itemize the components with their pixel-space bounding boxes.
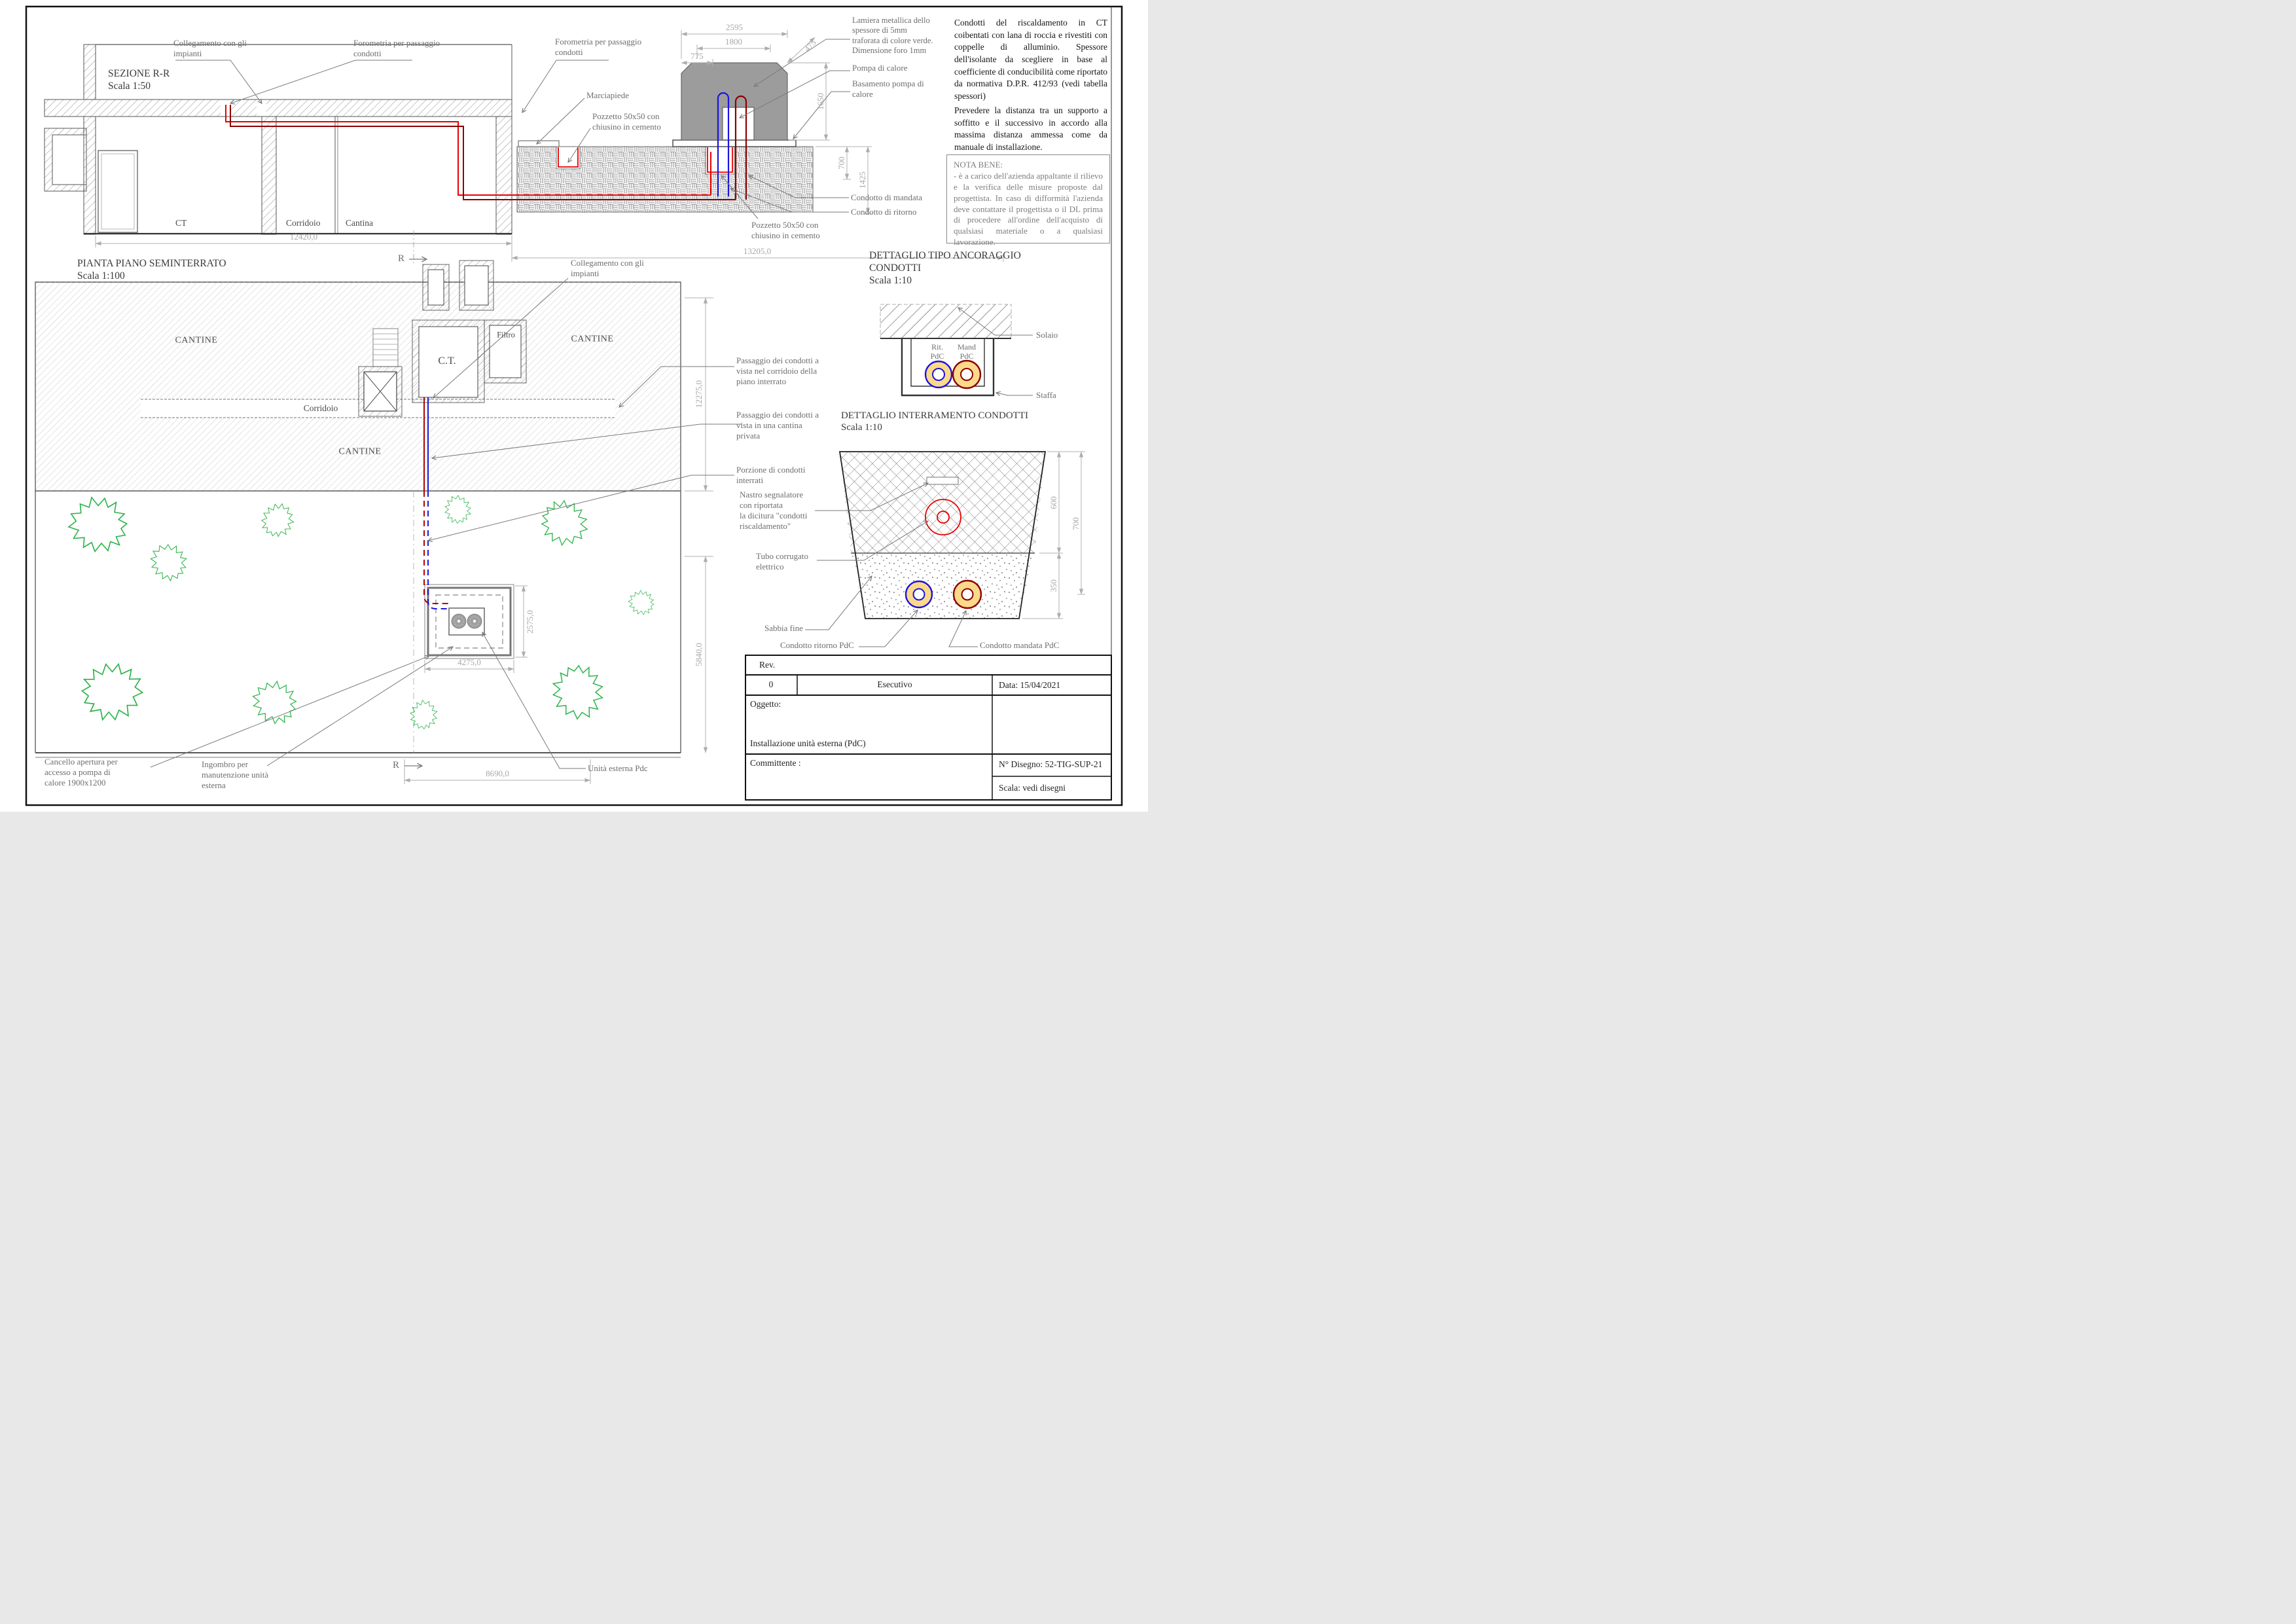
callout-porzione-interrati: Porzione di condotti interrati [736,465,805,486]
section-cut-marker-top: R [398,253,404,264]
garden [35,491,681,757]
callout-nastro: Nastro segnalatore con riportata la dici… [740,490,808,531]
titleblock-committente-label: Committente : [750,758,801,768]
callout-solaio: Solaio [1036,330,1058,340]
solaio-slab [880,304,1011,338]
ct-equipment [98,151,137,232]
callout-forometria-1: Forometria per passaggio condotti [353,38,440,59]
dim-12275: 12275,0 [694,380,704,408]
nastro-segnalatore [927,477,958,484]
room-corridoio-plan: Corridoio [304,403,338,414]
title-block-grid [745,655,1111,800]
plan-view [35,261,742,784]
callout-staffa: Staffa [1036,390,1056,401]
pipe-mand-pdc [953,361,980,388]
spec-note-2: Prevedere la distanza tra un supporto a … [954,105,1107,154]
room-cantina: Cantina [346,218,373,228]
dim-8690: 8690,0 [486,768,509,779]
callout-condotto-mandata: Condotto mandata PdC [980,640,1059,651]
nota-bene-title: NOTA BENE: [954,160,1103,171]
dim-775: 775 [691,51,704,62]
titleblock-drawing-no: N° Disegno: 52-TIG-SUP-21 [999,759,1102,770]
pipe-ritorno-trench [906,581,932,607]
dim-1800: 1800 [725,37,742,47]
callout-marciapiede: Marciapiede [586,90,629,101]
dim-2575: 2575,0 [525,610,535,634]
label-mand-pdc: Mand PdC [958,343,976,361]
callout-ingombro: Ingombro per manutenzione unità esterna [202,759,268,791]
callout-sabbia: Sabbia fine [764,623,803,634]
callout-lamiera: Lamiera metallica dello spessore di 5mm … [852,16,950,56]
external-unit [425,585,514,659]
titleblock-status: Esecutivo [877,679,912,690]
trench-soil [840,452,1045,553]
detail-trench-title: DETTAGLIO INTERRAMENTO CONDOTTI Scala 1:… [841,410,1028,434]
titleblock-scale: Scala: vedi disegni [999,783,1066,793]
dim-600: 600 [1049,496,1059,509]
section-title: SEZIONE R-R Scala 1:50 [108,68,170,93]
titleblock-date: Data: 15/04/2021 [999,680,1060,691]
detail-trench [805,452,1085,647]
detail-anchor [880,304,1033,395]
section-cut-marker-bottom: R [393,759,399,771]
callout-passaggio-corridoio: Passaggio dei condotti a vista nel corri… [736,355,819,387]
dim-700: 700 [836,156,847,170]
pipe-rit-pdc [925,361,952,388]
dim-1425: 1425 [857,171,868,189]
callout-pozzetto-1: Pozzetto 50x50 con chiusino in cemento [592,111,661,132]
titleblock-rev-value: 0 [769,679,774,690]
callout-ritorno: Condotto di ritorno [851,207,916,217]
dim-12420: 12420,0 [290,232,317,242]
dim-13205: 13205,0 [744,246,771,257]
titleblock-oggetto-label: Oggetto: [750,699,781,710]
fan-right [467,614,482,628]
detail-anchor-title: DETTAGLIO TIPO ANCORAGGIO CONDOTTI Scala… [869,250,1021,287]
pipe-mandata-trench [954,581,981,608]
room-cantine-left: CANTINE [175,334,218,346]
callout-collegamento-pianta: Collegamento con gli impianti [571,258,644,279]
callout-tubo-corrugato: Tubo corrugato elettrico [756,551,808,572]
dim-700-trench: 700 [1071,517,1081,530]
callout-forometria-2: Forometria per passaggio condotti [555,37,641,58]
callout-mandata: Condotto di mandata [851,192,922,203]
nota-bene-box: NOTA BENE: - è a carico dell'azienda app… [946,154,1110,244]
pozzetto-2 [706,147,734,174]
dim-5840: 5840,0 [694,643,704,666]
room-cantine-right: CANTINE [571,333,614,344]
dim-4275: 4275,0 [457,657,481,668]
room-cantine-lower: CANTINE [339,446,382,457]
plan-title: PIANTA PIANO SEMINTERRATO Scala 1:100 [77,258,226,283]
room-ct: CT [175,218,187,228]
marciapiede [518,141,559,147]
fan-left [452,614,466,628]
callout-passaggio-cantina: Passaggio dei condotti a vista in una ca… [736,410,819,441]
basamento-pompa [673,140,796,147]
callout-condotto-ritorno: Condotto ritorno PdC [780,640,854,651]
dim-2595: 2595 [726,22,743,33]
room-ct-plan: C.T. [438,355,456,368]
spec-note-1: Condotti del riscaldamento in CT coibent… [954,17,1107,102]
callout-cancello: Cancello apertura per accesso a pompa di… [45,757,118,788]
dim-350: 350 [1049,579,1059,592]
titleblock-rev-label: Rev. [759,660,775,670]
room-corridoio: Corridoio [286,218,321,228]
dim-1650: 1650 [816,93,826,110]
callout-unita-esterna: Unità esterna Pdc [588,763,648,774]
callout-pozzetto-2: Pozzetto 50x50 con chiusino in cemento [751,220,820,241]
label-rit-pdc: Rit. PdC [931,343,944,361]
room-filtro: Filtro [497,330,515,340]
titleblock-oggetto-value: Installazione unità esterna (PdC) [750,738,866,749]
trench-sand [851,553,1035,619]
callout-collegamento-sezione: Collegamento con gli impianti [173,38,247,59]
elevator [359,367,402,416]
nota-bene-body: - è a carico dell'azienda appaltante il … [954,171,1103,248]
trees [69,492,656,729]
building-body [35,282,681,491]
drawing-sheet: SEZIONE R-R Scala 1:50 CT Corridoio Cant… [0,0,1148,812]
stairs [373,329,398,367]
callout-pompa: Pompa di calore [852,63,907,73]
callout-basamento: Basamento pompa di calore [852,79,924,99]
